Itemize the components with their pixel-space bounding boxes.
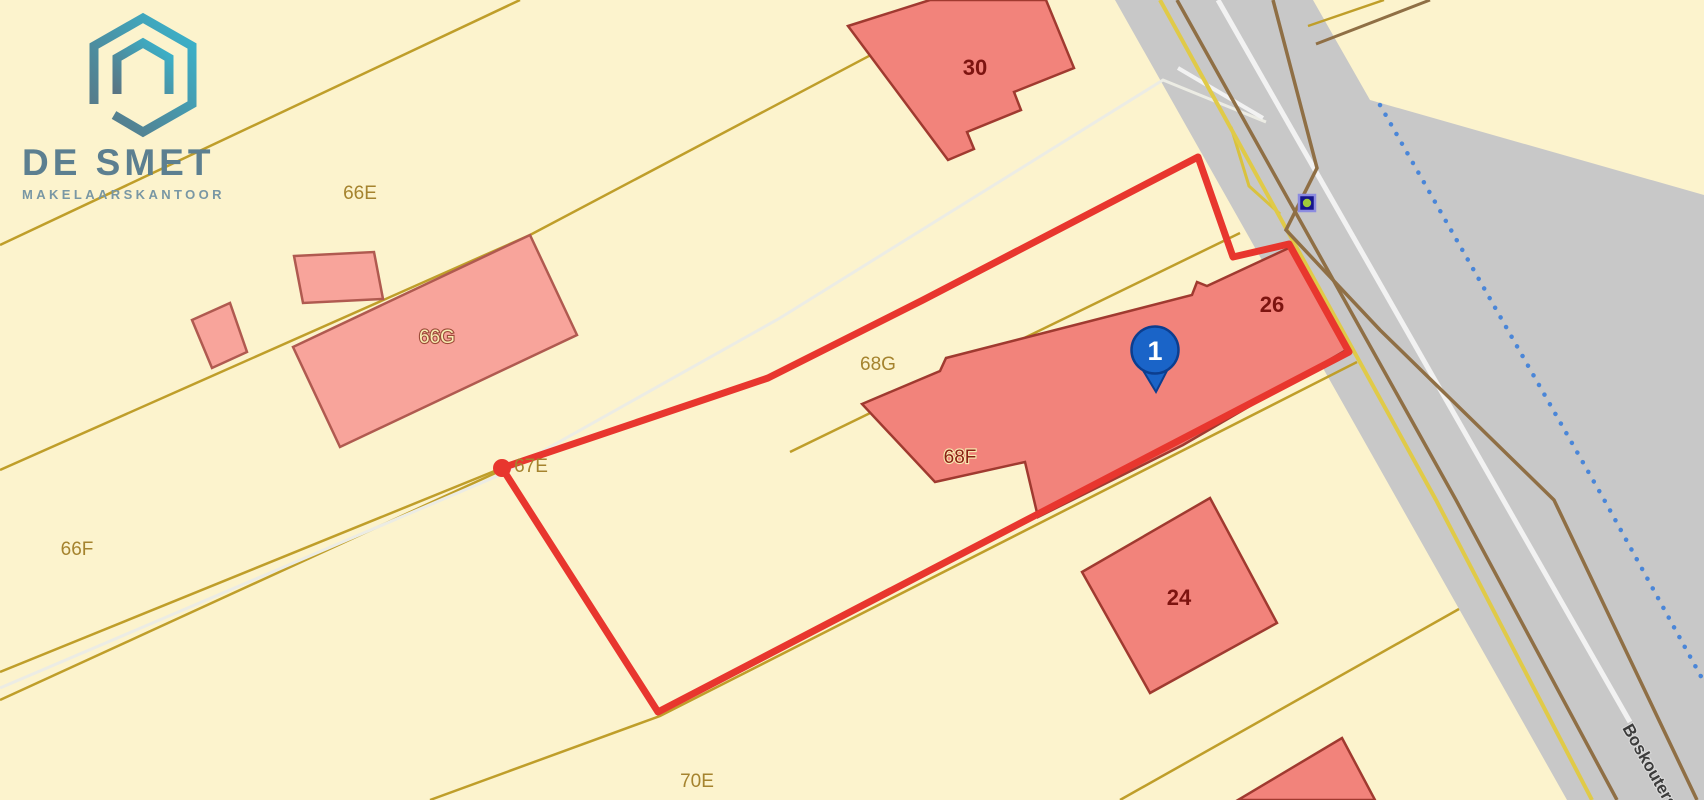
building-66g-shed[interactable]	[192, 303, 247, 368]
logo: DE SMET MAKELAARSKANTOOR	[22, 6, 252, 202]
building-66g-annex[interactable]	[294, 252, 383, 303]
parcel-label-70e: 70E	[680, 771, 714, 792]
building-30[interactable]	[848, 0, 1074, 160]
pin-number: 1	[1147, 336, 1162, 366]
poi-marker[interactable]	[1299, 195, 1315, 211]
cadastral-map[interactable]: 66E 67E 66F 68G 70E 30 26 24 66G 68F Bos…	[0, 0, 1704, 800]
building-label-24: 24	[1167, 585, 1192, 610]
building-bottom[interactable]	[1238, 738, 1375, 800]
logo-tagline-text: MAKELAARSKANTOOR	[22, 187, 252, 202]
selected-parcel-vertex-dot[interactable]	[493, 459, 511, 477]
parcel-line-topright-brown	[1316, 0, 1430, 44]
building-label-26: 26	[1260, 292, 1284, 317]
parcel-label-66f: 66F	[61, 539, 94, 560]
logo-brand-text: DE SMET	[22, 142, 252, 184]
parcel-label-67e: 67E	[514, 456, 548, 477]
building-label-68f: 68F	[944, 447, 977, 468]
building-label-66g: 66G	[419, 327, 455, 348]
parcel-label-68g: 68G	[860, 354, 896, 375]
building-label-30: 30	[963, 55, 987, 80]
parcel-line-c	[0, 468, 502, 672]
parcel-label-66e: 66E	[343, 183, 377, 204]
map-viewport[interactable]: 66E 67E 66F 68G 70E 30 26 24 66G 68F Bos…	[0, 0, 1704, 800]
logo-hexagon-icon	[80, 6, 206, 138]
